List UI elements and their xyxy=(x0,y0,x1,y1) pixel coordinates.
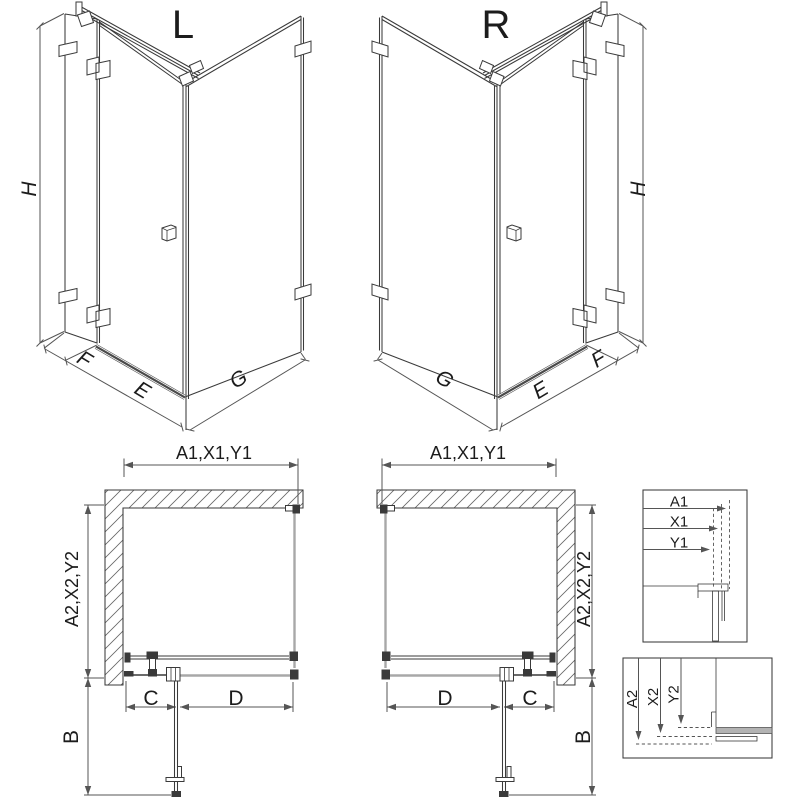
detail-y1-label: Y1 xyxy=(670,535,688,552)
panel-width-label-left: D xyxy=(228,687,243,710)
plan-width-label-left: A1,X1,Y1 xyxy=(176,443,252,463)
detail-x1-label: X1 xyxy=(670,514,688,531)
detail-y2-label: Y2 xyxy=(666,685,683,703)
entry-label-left: B xyxy=(60,730,83,744)
plan-width-label-right: A1,X1,Y1 xyxy=(430,443,506,463)
technical-drawing-sheet: L H F E G R H F E G A1,X1,Y1 A2,X2,Y2 C … xyxy=(0,0,800,800)
plan-depth-label-right: A2,X2,Y2 xyxy=(574,551,594,627)
detail-a1-label: A1 xyxy=(670,494,688,511)
panel-width-label-right: D xyxy=(437,687,452,710)
door-width-label-right: C xyxy=(522,687,537,710)
fixed-label-right: F xyxy=(587,346,611,373)
detail-box-depth: A2 X2 Y2 xyxy=(623,658,772,758)
wall-profile-section xyxy=(643,584,728,641)
shower-enclosure-diagram: L H F E G R H F E G A1,X1,Y1 A2,X2,Y2 C … xyxy=(0,0,800,800)
entry-label-right: B xyxy=(572,730,595,744)
detail-x2-label: X2 xyxy=(645,688,662,706)
iso-view-right: R H F E G xyxy=(372,2,650,431)
height-label-right: H xyxy=(627,181,650,197)
side-label-right: G xyxy=(431,365,457,393)
plan-view-left: A1,X1,Y1 A2,X2,Y2 C D B xyxy=(60,443,303,797)
side-label-left: G xyxy=(226,365,252,393)
plan-depth-label-left: A2,X2,Y2 xyxy=(62,551,82,627)
height-label-left: H xyxy=(18,181,41,197)
threshold-profile-section xyxy=(712,658,773,741)
detail-box-width: A1 X1 Y1 xyxy=(643,490,747,642)
variant-title-left: L xyxy=(172,3,194,47)
door-width-label-left: C xyxy=(143,687,158,710)
plan-view-right: A1,X1,Y1 A2,X2,Y2 D C B xyxy=(377,443,596,797)
iso-view-left: L H F E G xyxy=(18,2,311,431)
fixed-label-left: F xyxy=(73,346,97,373)
detail-a2-label: A2 xyxy=(624,690,641,708)
variant-title-right: R xyxy=(482,3,511,47)
